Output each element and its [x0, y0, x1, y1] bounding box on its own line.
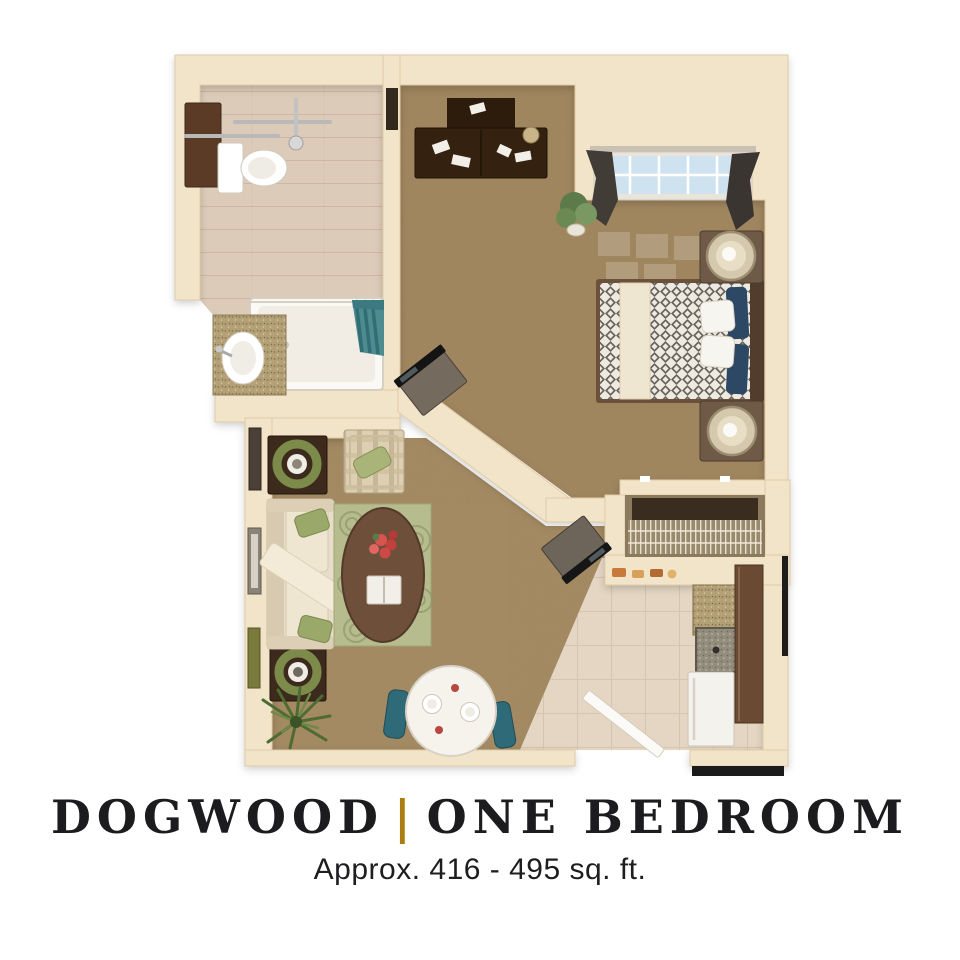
throw-blanket — [620, 283, 650, 399]
plan-name: DOGWOOD — [51, 790, 384, 844]
door-mat — [692, 766, 784, 776]
plumbing-chase — [386, 88, 398, 130]
caption-block: DOGWOOD|ONE BEDROOM Approx. 416 - 495 sq… — [0, 792, 960, 887]
kitchen-sink — [696, 628, 736, 672]
page: DOGWOOD|ONE BEDROOM Approx. 416 - 495 sq… — [0, 0, 960, 960]
wall-bottom-left — [245, 750, 575, 766]
title-separator: | — [394, 790, 417, 844]
refrigerator — [688, 672, 734, 746]
nightstand-top — [700, 231, 763, 283]
round-dining-table — [406, 666, 496, 756]
oval-coffee-table — [342, 508, 424, 642]
end-table-top — [268, 436, 327, 494]
headboard — [750, 281, 764, 401]
striped-armchair — [344, 430, 404, 493]
nightstand-bottom — [700, 401, 763, 461]
plan-title: DOGWOOD|ONE BEDROOM — [0, 792, 960, 843]
wall-closet-top — [620, 480, 765, 495]
plan-subtitle: Approx. 416 - 495 sq. ft. — [0, 853, 960, 887]
bed — [596, 279, 764, 403]
railing — [782, 556, 788, 656]
wall-art-frames — [248, 428, 261, 688]
hanging-rod — [632, 498, 758, 520]
floor-plan-svg — [0, 0, 960, 785]
wire-shelving — [628, 520, 762, 554]
table-lamp — [707, 232, 755, 280]
tall-cabinet — [735, 565, 763, 723]
floor-plan-rendering — [0, 0, 960, 785]
wall-bottom-right — [690, 750, 788, 766]
vanity-sink — [213, 315, 286, 395]
plan-unit-type: ONE BEDROOM — [427, 790, 909, 844]
table-lamp — [708, 407, 756, 455]
wall-cabinet — [185, 103, 221, 187]
